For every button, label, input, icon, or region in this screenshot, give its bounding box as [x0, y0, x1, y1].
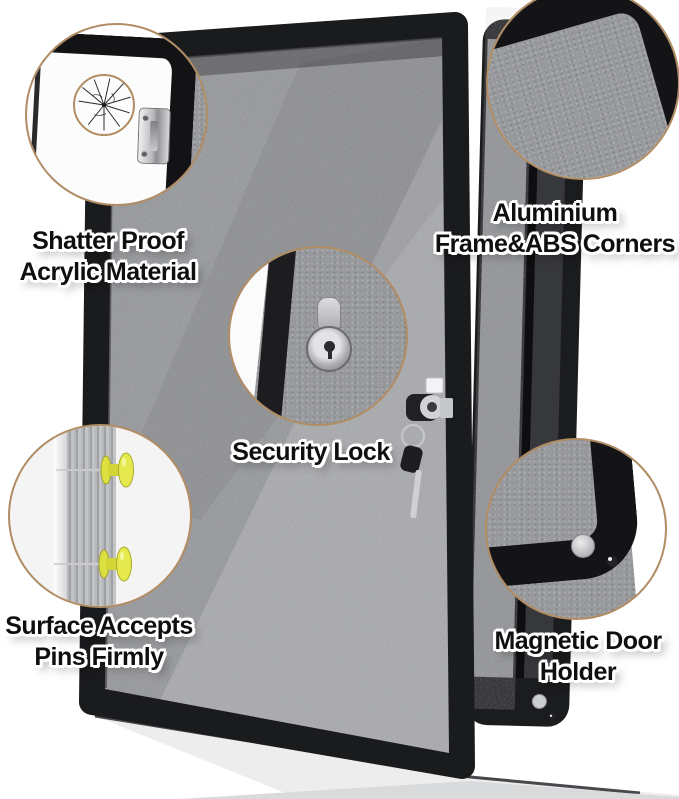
label-line: Magnetic Door [477, 626, 679, 657]
label-pin-surface: Surface Accepts Pins Firmly [0, 611, 198, 673]
label-line: Aluminium [428, 198, 679, 229]
label-line: Acrylic Material [6, 257, 210, 288]
label-line: Frame&ABS Corners [428, 229, 679, 260]
product-feature-image: Shatter Proof Acrylic Material Aluminium… [0, 0, 679, 799]
label-magnetic-holder: Magnetic Door Holder [477, 626, 679, 688]
magnet-icon [571, 534, 595, 558]
frame-corner-band [485, 438, 642, 589]
callout-shatter-circle [25, 23, 208, 206]
label-aluminium-corners: Aluminium Frame&ABS Corners [428, 198, 679, 260]
screw-icon [143, 115, 149, 121]
label-shatter-proof: Shatter Proof Acrylic Material [6, 226, 210, 288]
security-lock-icon [306, 326, 352, 372]
label-line: Pins Firmly [0, 642, 198, 673]
label-line: Surface Accepts [0, 611, 198, 642]
magnet-icon [532, 694, 546, 708]
callout-magnet-circle [485, 438, 667, 620]
rounded-corner-icon [486, 0, 679, 180]
hinge-icon [138, 108, 170, 163]
label-line: Security Lock [218, 437, 404, 468]
push-pin-icon [52, 544, 144, 584]
cracked-glass-icon [73, 74, 135, 136]
push-pin-icon [54, 450, 146, 490]
crack-lines [75, 76, 133, 134]
callout-pins-circle [8, 424, 192, 608]
label-security-lock: Security Lock [218, 437, 404, 468]
callout-lock-circle [228, 246, 408, 426]
label-line: Holder [477, 657, 679, 688]
screw-icon [141, 151, 147, 157]
label-line: Shatter Proof [6, 226, 210, 257]
callout-corner-circle [486, 0, 679, 180]
